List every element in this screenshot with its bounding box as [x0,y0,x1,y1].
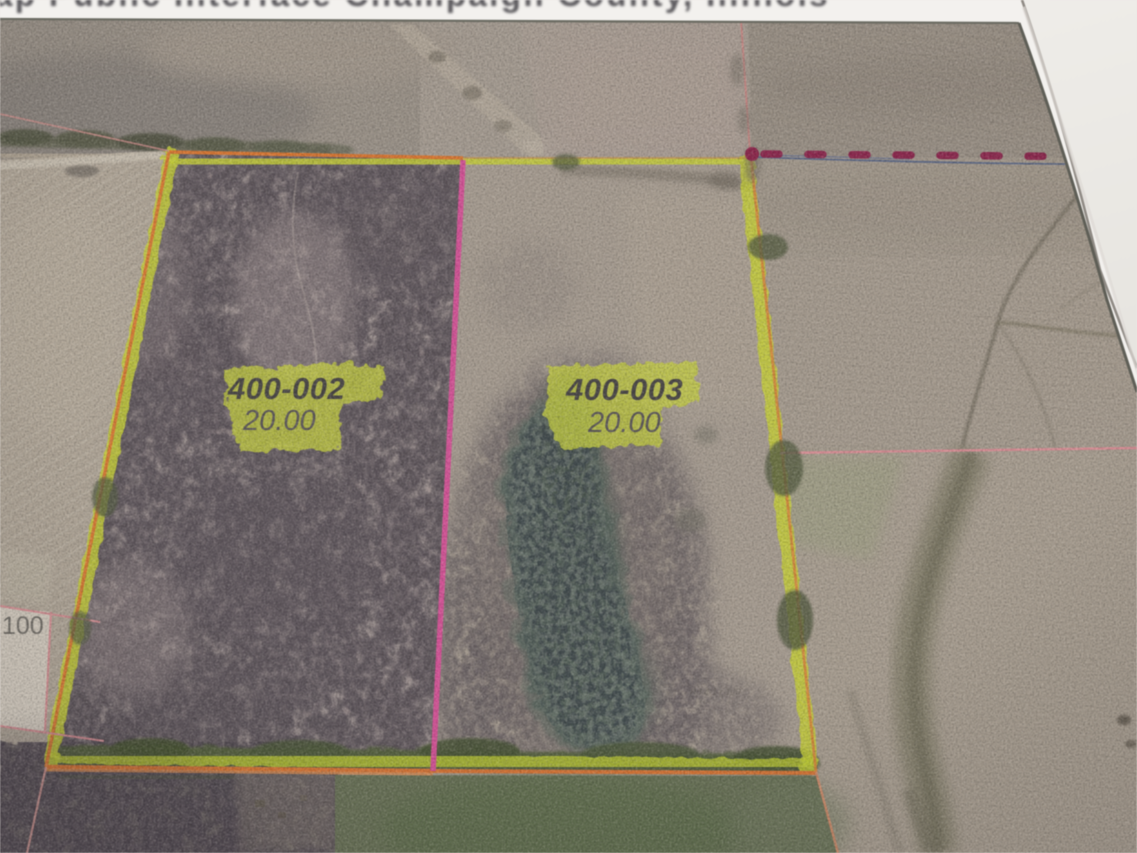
svg-text:ap Public Interface Champaign: ap Public Interface Champaign County, Il… [0,0,830,13]
